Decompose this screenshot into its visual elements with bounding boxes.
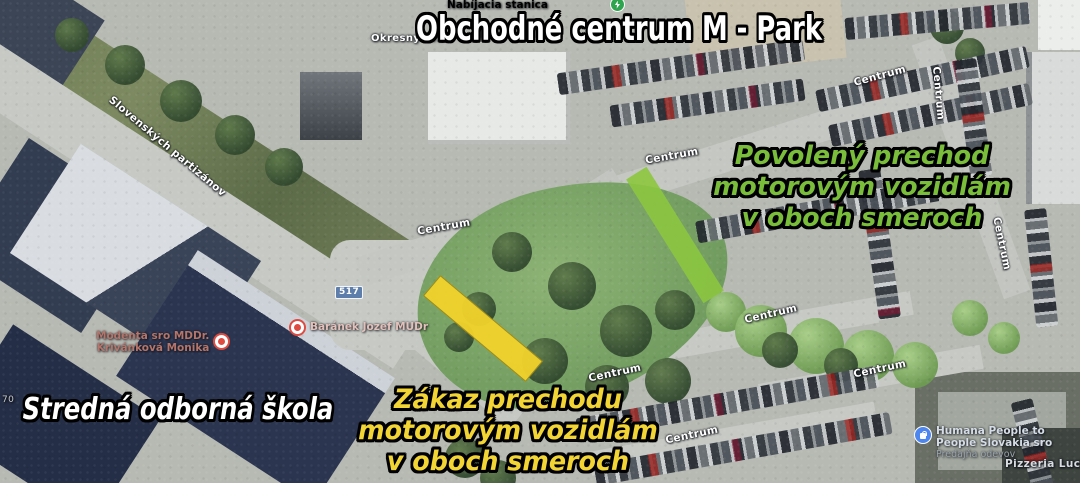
poi-modenta-line2: Krivánková Monika	[96, 343, 209, 355]
parked-cars-row	[1024, 208, 1058, 328]
annotation-line: Zákaz prechodu	[358, 384, 658, 415]
tree	[600, 305, 652, 357]
building-roof	[428, 52, 570, 144]
satellite-map[interactable]: Slovenských partizánov Okresný úrad Nabí…	[0, 0, 1080, 483]
poi-pizzeria[interactable]: Pizzeria Luciano	[1005, 458, 1080, 470]
annotation-line: v oboch smeroch	[713, 203, 1011, 234]
tree	[492, 232, 532, 272]
tree	[160, 80, 202, 122]
map-title-text: Obchodné centrum M - Park	[416, 9, 822, 49]
tree	[215, 115, 255, 155]
tree	[655, 290, 695, 330]
tree	[265, 148, 303, 186]
annotation-line: motorovým vozidlám	[713, 172, 1011, 203]
tree	[952, 300, 988, 336]
poi-modenta-label[interactable]: Modenta sro MDDr. Krivánková Monika	[96, 331, 209, 354]
poi-baranek-label[interactable]: Baránek Jozef MUDr	[310, 322, 428, 334]
medical-pin-icon[interactable]	[213, 333, 230, 350]
poi-humana-label[interactable]: Humana People to People Slovakia sro Pre…	[936, 426, 1052, 461]
poi-humana-line2: People Slovakia sro	[936, 438, 1052, 450]
map-title: Obchodné centrum M - Park	[352, 9, 886, 49]
annotation-line: v oboch smeroch	[358, 446, 658, 477]
annotation-allowed-passage: Povolený prechod motorovým vozidlám v ob…	[709, 141, 1016, 234]
tree	[762, 332, 798, 368]
annotation-school: Stredná odborná škola	[0, 392, 370, 427]
building-roof	[300, 72, 362, 140]
annotation-forbidden-passage: Zákaz prechodu motorovým vozidlám v oboc…	[349, 384, 668, 477]
poi-modenta[interactable]: Modenta sro MDDr. Krivánková Monika	[96, 331, 230, 354]
parked-cars-row	[609, 79, 805, 128]
annotation-school-text: Stredná odborná škola	[23, 392, 334, 427]
medical-pin-icon[interactable]	[289, 319, 306, 336]
tree	[105, 45, 145, 85]
building-roof	[1026, 52, 1080, 204]
road-number-badge: 517	[335, 286, 363, 299]
poi-humana[interactable]: Humana People to People Slovakia sro Pre…	[914, 426, 1052, 461]
annotation-line: motorovým vozidlám	[358, 415, 658, 446]
poi-baranek[interactable]: Baránek Jozef MUDr	[289, 319, 428, 336]
tree	[55, 18, 89, 52]
shopping-bag-icon[interactable]	[914, 426, 932, 444]
poi-humana-line1: Humana People to	[936, 426, 1052, 438]
annotation-line: Povolený prechod	[713, 141, 1011, 172]
tree	[548, 262, 596, 310]
building-roof	[1038, 0, 1080, 50]
poi-modenta-line1: Modenta sro MDDr.	[96, 331, 209, 343]
tree	[988, 322, 1020, 354]
